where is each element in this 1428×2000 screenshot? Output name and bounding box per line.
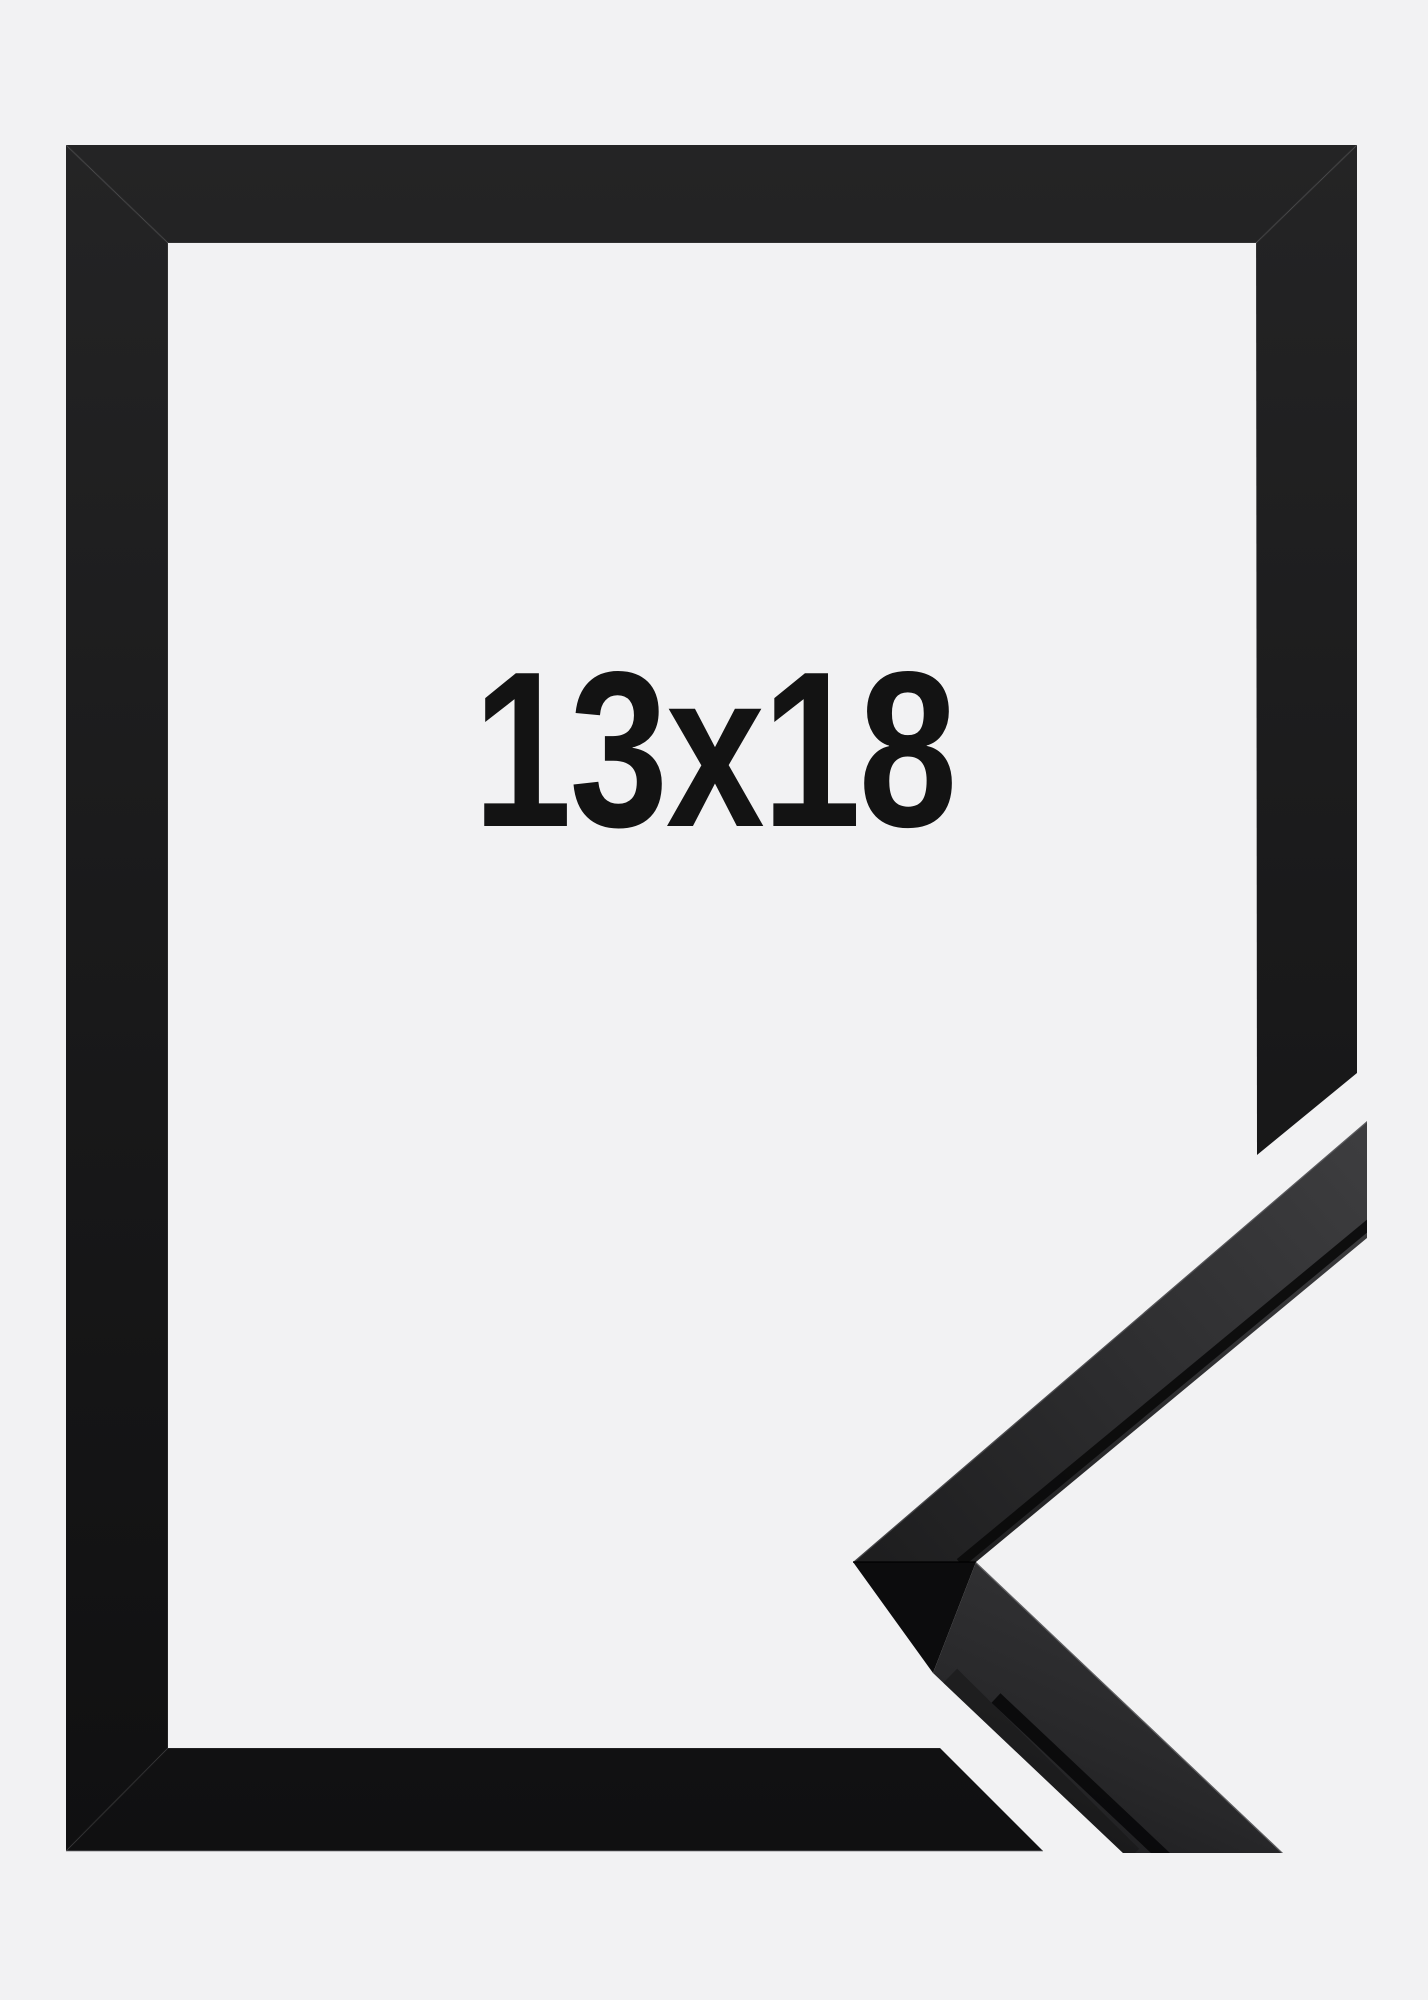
- frame-top-bar: [66, 145, 1357, 243]
- photo-background: [0, 0, 1428, 2000]
- frame-left-bar: [66, 145, 168, 1851]
- product-photo-frame: 13x18: [0, 0, 1428, 2000]
- frame-size-label: 13x18: [143, 639, 1285, 861]
- frame-bottom-bar: [66, 1748, 1043, 1851]
- frame-illustration: [0, 0, 1428, 2000]
